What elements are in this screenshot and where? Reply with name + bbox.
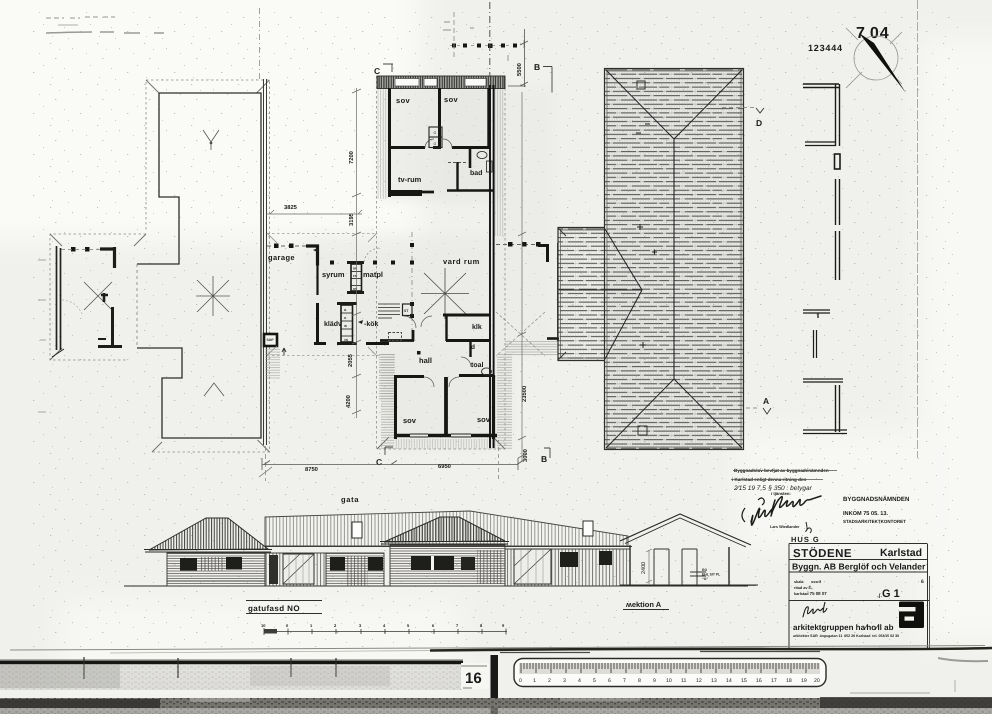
svg-text:ritad av Ȇₓ: ritad av Ȇₓ [794, 585, 813, 590]
svg-text:19: 19 [801, 678, 807, 684]
svg-text:matpl: matpl [363, 270, 383, 279]
svg-text:sov: sov [396, 96, 411, 105]
svg-text:“G”: “G” [702, 577, 708, 581]
svg-text:toal: toal [471, 361, 484, 369]
svg-text:8: 8 [638, 678, 641, 684]
svg-text:16: 16 [756, 678, 762, 684]
svg-text:17: 17 [771, 678, 777, 684]
svg-text:hall: hall [419, 356, 432, 365]
svg-text:4200: 4200 [345, 395, 352, 408]
svg-text:2: 2 [548, 678, 551, 684]
svg-text:3195: 3195 [348, 212, 355, 226]
svg-text:arkitekter SAR ängsgatan 11 65: arkitekter SAR ängsgatan 11 652 26 Karls… [793, 634, 899, 638]
svg-text:Byggn. AB Berglöf och Velander: Byggn. AB Berglöf och Velander [792, 562, 926, 572]
svg-text:20: 20 [814, 678, 820, 684]
svg-text:11: 11 [681, 678, 686, 684]
svg-text:14: 14 [726, 678, 732, 684]
svg-text:1: 1 [533, 678, 536, 684]
svg-text:-kök: -kök [364, 320, 379, 328]
svg-text:6: 6 [608, 678, 611, 684]
svg-text:STADSARKITEKTKONTORET: STADSARKITEKTKONTORET [843, 519, 906, 524]
svg-text:klädv: klädv [324, 320, 342, 328]
svg-text:karlstad 75 08 07: karlstad 75 08 07 [794, 591, 827, 596]
svg-text:skala sssrð: skala sssrð [794, 580, 822, 584]
svg-text:15: 15 [741, 678, 747, 684]
svg-text:5: 5 [593, 678, 596, 684]
svg-text:2055: 2055 [347, 353, 354, 367]
svg-text:HUS G: HUS G [791, 535, 820, 544]
svg-text:7200: 7200 [348, 151, 355, 164]
svg-text:5500: 5500 [516, 63, 523, 76]
svg-text:G: G [434, 131, 437, 135]
svg-text:6950: 6950 [438, 463, 451, 470]
svg-text:D: D [756, 118, 762, 128]
svg-text:123444: 123444 [808, 43, 843, 53]
svg-text:6: 6 [921, 579, 924, 585]
svg-text:Lars Wiedlander: Lars Wiedlander [770, 525, 800, 529]
svg-text:IS: IS [344, 324, 347, 328]
svg-text:704: 704 [856, 25, 890, 42]
svg-text:gata: gata [341, 495, 359, 504]
svg-text:gatufasd NO: gatufasd NO [248, 604, 300, 613]
svg-text:4: 4 [578, 678, 581, 684]
svg-text:9: 9 [653, 678, 656, 684]
svg-text:INKOM 75 05. 13.: INKOM 75 05. 13. [843, 511, 889, 517]
svg-text:18: 18 [786, 678, 792, 684]
svg-text:garage: garage [268, 253, 295, 262]
svg-text:arkitektgruppen ha⁄ho⁄ll ab: arkitektgruppen ha⁄ho⁄ll ab [793, 623, 894, 632]
svg-text:d: d [471, 344, 475, 351]
svg-text:B: B [534, 62, 540, 72]
svg-text:vard rum: vard rum [443, 257, 480, 266]
svg-text:B: B [541, 454, 547, 464]
svg-text:A: A [763, 396, 769, 406]
svg-text:10: 10 [666, 678, 672, 684]
svg-text:7: 7 [623, 678, 626, 684]
svg-text:BYGGNADSNÄMNDEN: BYGGNADSNÄMNDEN [843, 495, 909, 503]
svg-text:VS: VS [344, 338, 348, 342]
svg-text:3825: 3825 [284, 204, 298, 211]
svg-text:8750: 8750 [305, 466, 318, 473]
svg-text:C: C [374, 66, 380, 76]
svg-text:sov: sov [444, 95, 459, 104]
svg-text:i tjänsten:: i tjänsten: [771, 491, 791, 496]
svg-text:RG: RG [702, 568, 707, 572]
svg-text:EHL SIT PL: EHL SIT PL [702, 573, 720, 577]
svg-text:syrum: syrum [322, 270, 345, 279]
svg-text:10: 10 [261, 623, 266, 628]
svg-text:ʍektion A: ʍektion A [625, 600, 662, 609]
svg-text:13: 13 [711, 678, 717, 684]
svg-text:C: C [376, 457, 382, 467]
svg-text:bad: bad [470, 169, 482, 177]
svg-text:0: 0 [519, 678, 522, 684]
svg-text:tv-rum: tv-rum [398, 175, 422, 184]
svg-text:16: 16 [465, 670, 482, 687]
svg-text:klk: klk [472, 323, 482, 331]
svg-text:sov: sov [477, 415, 491, 424]
svg-text:SOP: SOP [267, 338, 275, 342]
svg-text:3: 3 [563, 678, 566, 684]
svg-text:STÖDENE: STÖDENE [793, 547, 852, 560]
svg-text:Karlstad: Karlstad [880, 547, 922, 559]
svg-text:2400: 2400 [641, 562, 647, 574]
svg-text:12: 12 [696, 678, 702, 684]
svg-text:G: G [434, 142, 437, 146]
svg-text:sov: sov [403, 416, 417, 425]
